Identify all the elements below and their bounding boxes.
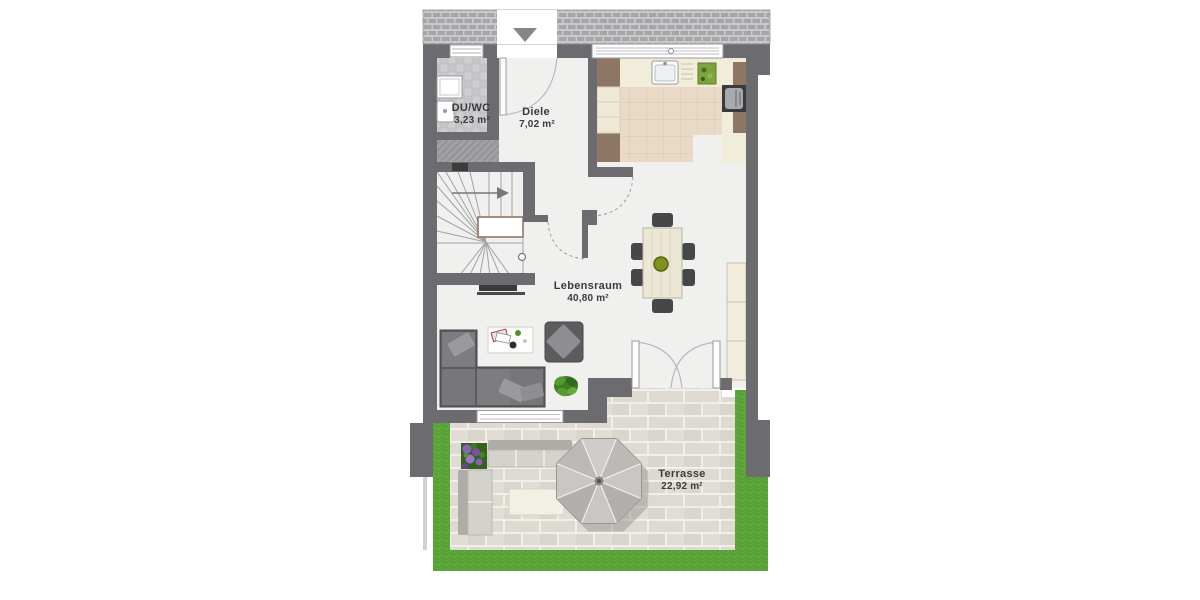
cutting-board-icon [698,63,716,84]
wall-radiator [452,163,468,171]
kitchen-cabinet [733,111,746,133]
room-area-terrasse: 22,92 m² [661,481,703,492]
exterior-wall-hatch [423,10,770,44]
flower-planter-icon [461,443,487,469]
table-plant-icon [654,257,668,271]
kitchen-shelf [597,87,620,133]
room-area-diele: 7,02 m² [519,119,555,130]
stove-icon [722,85,746,112]
room-area-duwc: 3,23 m² [454,115,490,126]
kitchen-cabinet [597,133,620,162]
room-label-terrasse: Terrasse [658,468,705,480]
kitchen [597,58,746,163]
coffee-table [488,327,533,353]
room-area-lebensraum: 40,80 m² [567,293,609,304]
fence-line [423,477,427,550]
kitchen-cabinet [597,58,620,87]
kitchen-cabinet [733,62,746,85]
stair-landing [478,217,523,237]
armchair [545,322,583,362]
floorplan-page: DU/WC 3,23 m² Diele 7,02 m² Lebensraum 4… [0,0,1200,600]
outdoor-table [509,489,564,515]
shelf-unit [727,263,746,380]
room-label-diele: Diele [522,106,550,118]
room-label-lebensraum: Lebensraum [554,280,622,292]
room-label-duwc: DU/WC [452,102,491,114]
kitchen-floor [620,87,722,135]
understairs-closet-floor [433,140,499,162]
stair-newel-post [519,254,526,261]
floorplan-drawing: DU/WC 3,23 m² Diele 7,02 m² Lebensraum 4… [0,0,1200,600]
